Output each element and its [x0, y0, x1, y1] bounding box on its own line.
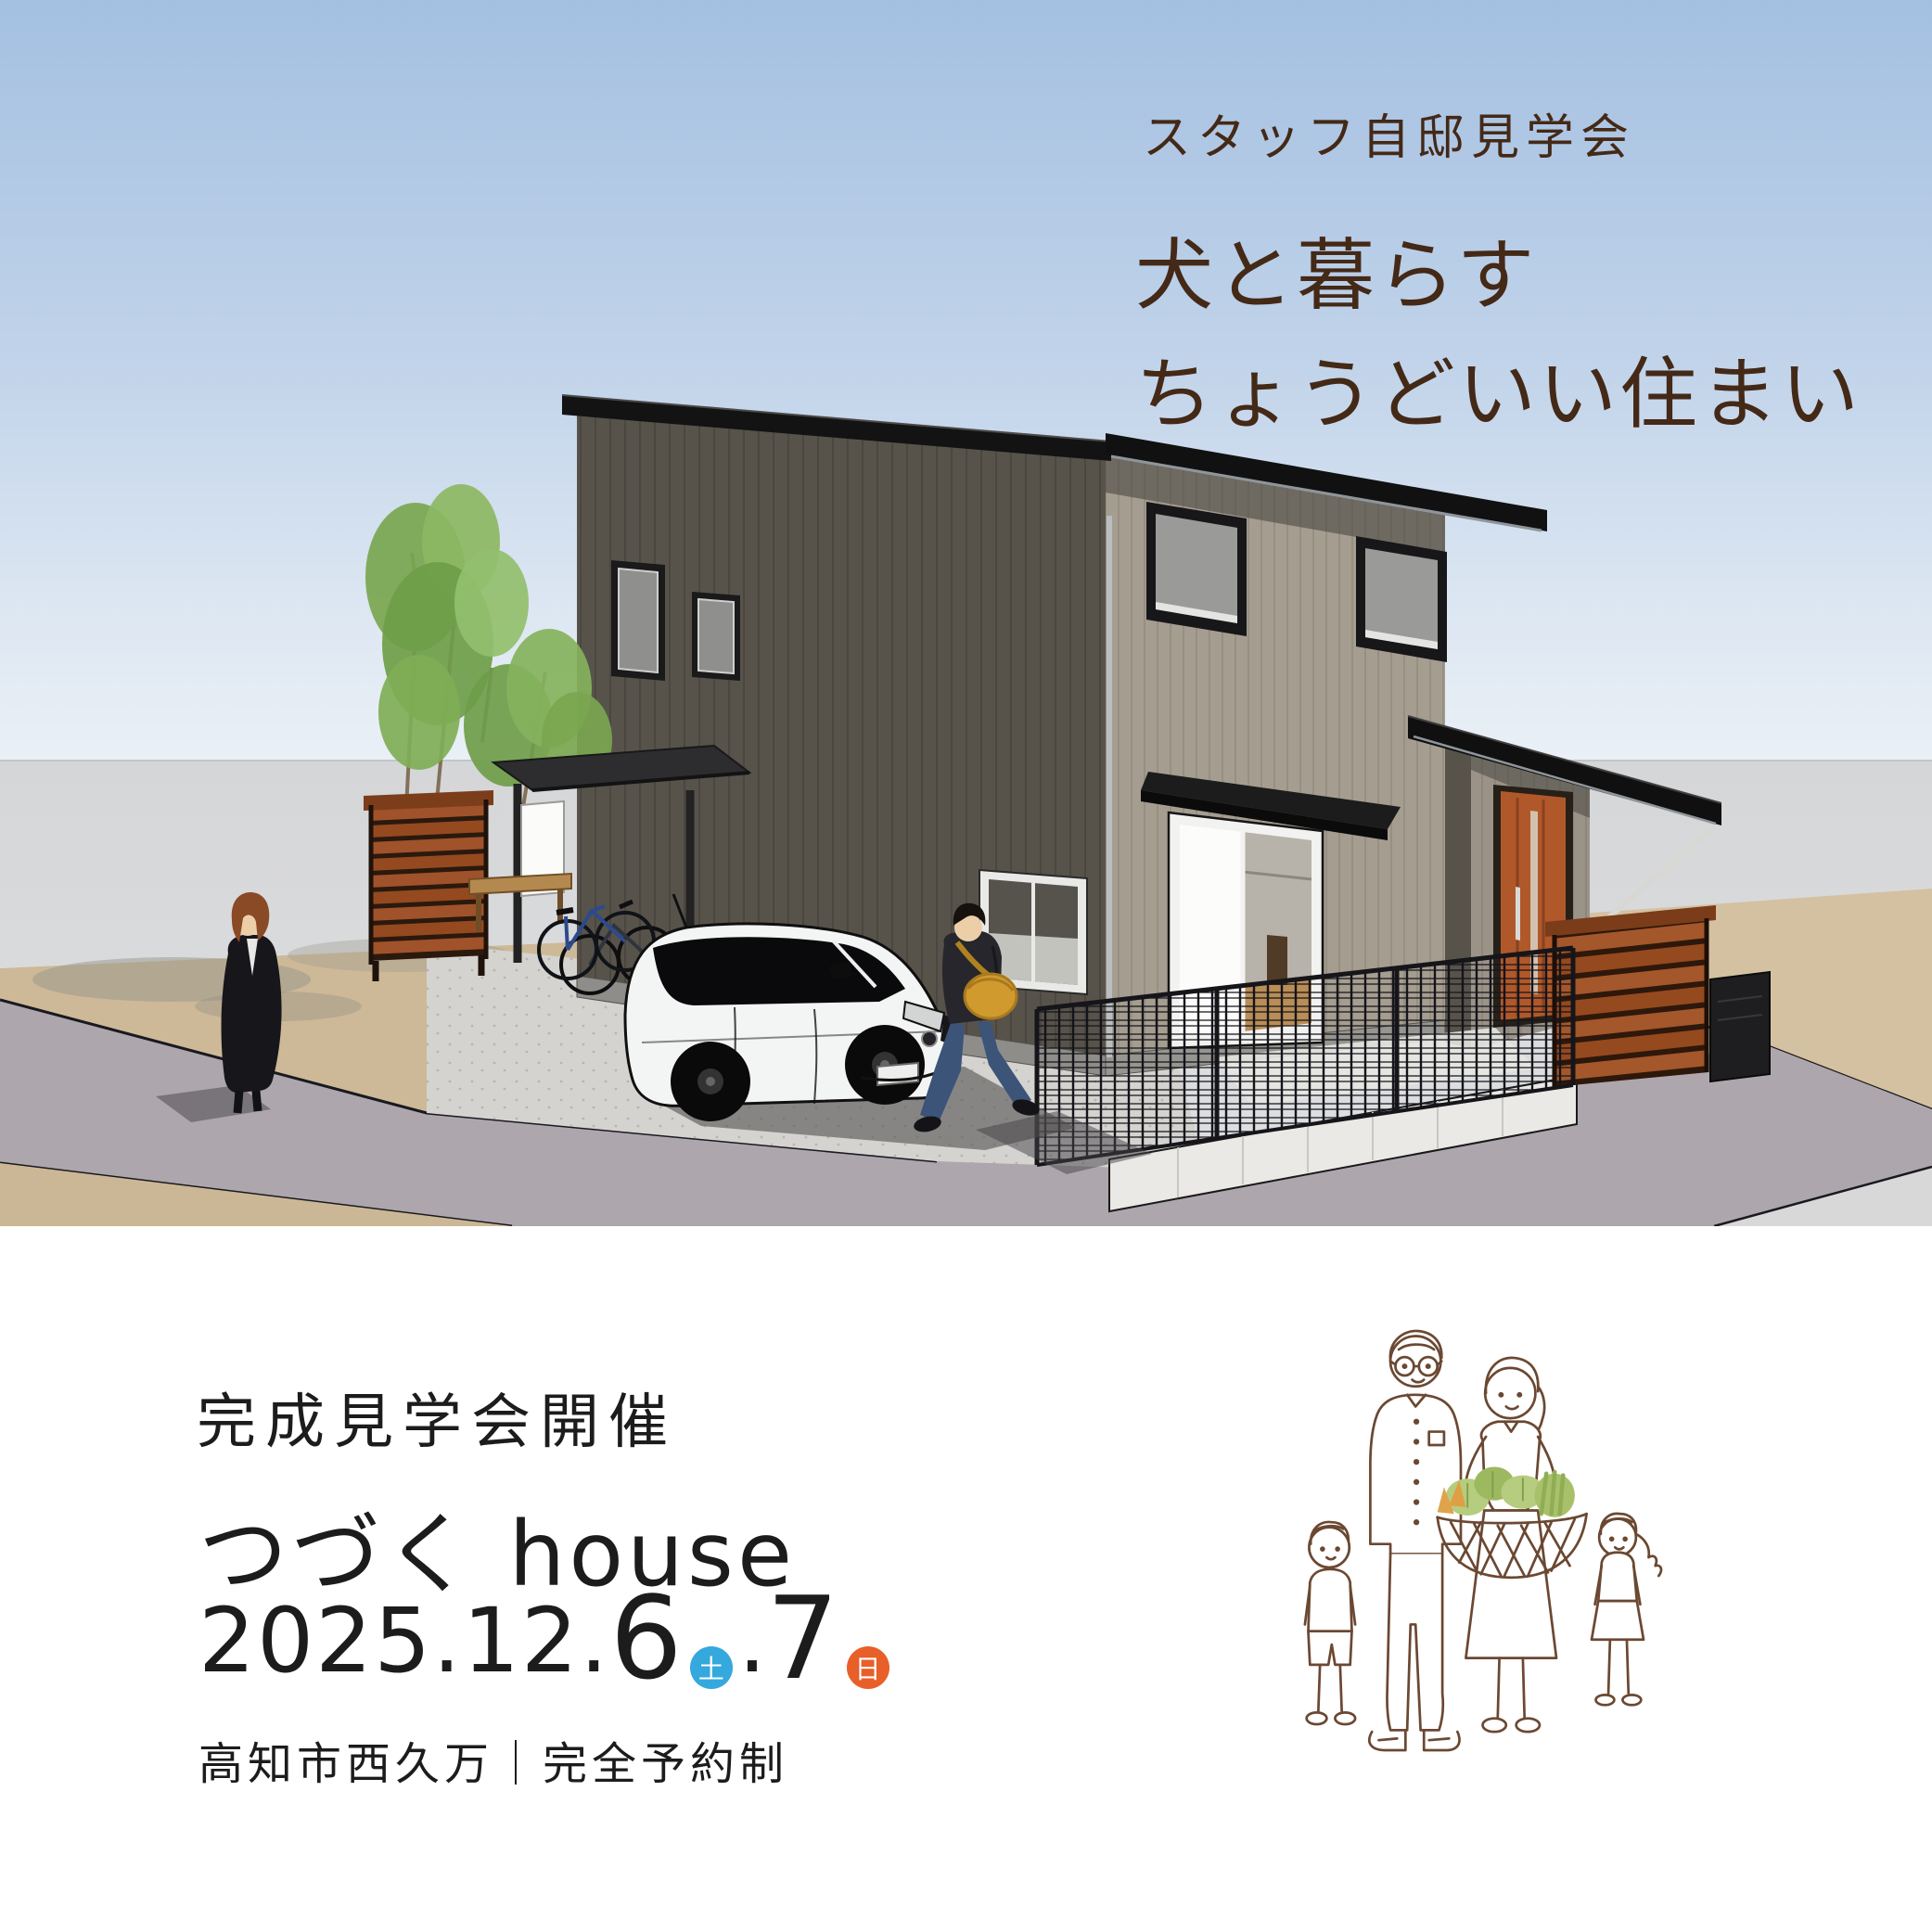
braid: [1636, 1534, 1661, 1576]
date-separator: .: [738, 1585, 767, 1696]
event-subtitle: 完成見学会開催: [197, 1375, 677, 1460]
open-house-flyer: スタッフ自邸見学会 犬と暮らす ちょうどいい住まい 完成見学会開催 つづく ho…: [0, 0, 1932, 1932]
door-handle: [1516, 887, 1520, 940]
vegetable-basket: [1438, 1467, 1587, 1578]
boy-figure: [1305, 1522, 1355, 1724]
father-figure: [1369, 1331, 1461, 1750]
date-year-month: 2025.12.: [198, 1585, 610, 1696]
headline-line-2: ちょうどいい住まい: [1135, 335, 1862, 454]
sunday-badge: 日: [847, 1646, 889, 1689]
headline-line-1: 犬と暮らす: [1135, 216, 1862, 335]
family-illustration: [1243, 1306, 1679, 1759]
event-tag: スタッフ自邸見学会: [1143, 98, 1862, 168]
headline: 犬と暮らす ちょうどいい住まい: [1135, 216, 1862, 454]
hero-text-block: スタッフ自邸見学会 犬と暮らす ちょうどいい住まい: [1135, 98, 1862, 454]
saturday-badge: 土: [690, 1646, 733, 1689]
utility-box: [1710, 972, 1770, 1081]
family-illustration-svg: [1243, 1306, 1679, 1759]
date-day-1: 6: [610, 1582, 683, 1696]
venue-note: 高知市西久万｜完全予約制: [198, 1727, 788, 1792]
girl-figure: [1592, 1514, 1661, 1705]
date-day-2: 7: [766, 1582, 838, 1696]
event-date-row: 2025.12. 6 土 . 7 日: [198, 1582, 893, 1696]
